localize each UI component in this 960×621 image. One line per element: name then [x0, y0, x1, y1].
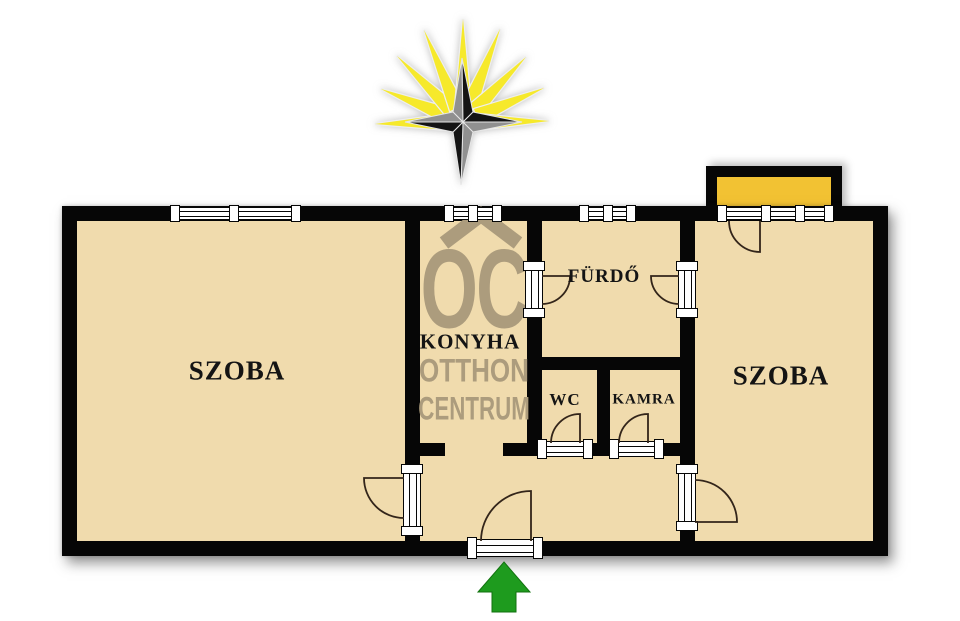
door-arc-right-room [695, 480, 737, 522]
room-label-left-szoba: SZOBA [189, 356, 286, 387]
door-arc-wc [551, 414, 580, 443]
door-arc-balcony [729, 221, 760, 252]
room-label-right-szoba: SZOBA [733, 361, 830, 392]
room-label-konyha: KONYHA [420, 330, 521, 355]
entrance-arrow-icon [470, 556, 540, 618]
room-label-wc: WC [549, 390, 580, 410]
door-arc-bathroom-right [651, 276, 679, 304]
floor-plan-image: OC OTTHON CENTRUM [0, 0, 960, 621]
room-label-kamra: KAMRA [612, 392, 675, 409]
door-arc-left-room [364, 478, 404, 518]
compass-star-icon [360, 5, 570, 200]
door-arc-bathroom-left [542, 276, 570, 304]
door-arc-pantry [619, 414, 648, 443]
door-arc-entrance [481, 491, 531, 541]
room-label-furdo: FÜRDŐ [568, 266, 641, 288]
